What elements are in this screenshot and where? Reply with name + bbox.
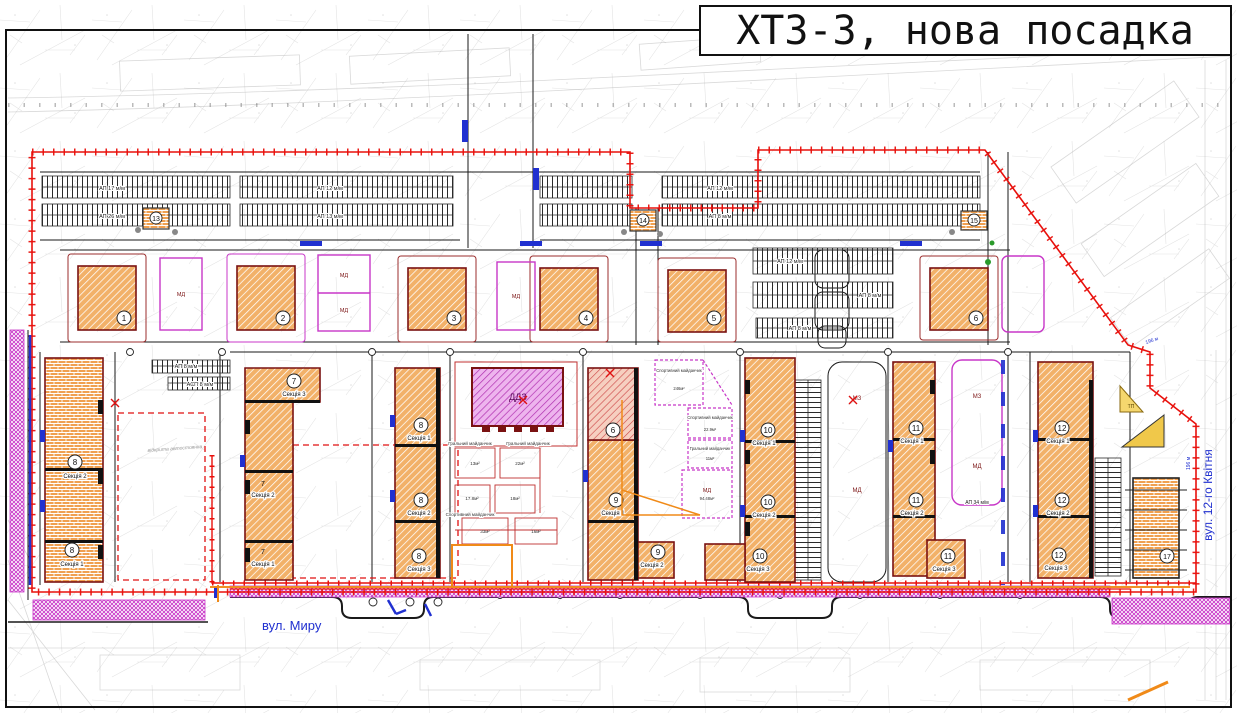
playground-area: 13м²: [470, 461, 480, 466]
playground-caption: Спортивний майданчик: [687, 415, 733, 420]
building-number: 10: [764, 426, 773, 435]
section-label: Секція 2: [752, 513, 776, 519]
md-area: 94.48м²: [700, 496, 715, 501]
building-number: 2: [281, 314, 286, 323]
playground-area: 246м²: [673, 386, 685, 391]
building-12: 12 Секція 1 12 Секція 2 12 Секція 3: [1038, 362, 1093, 578]
section-label: Секція 3: [1044, 566, 1068, 572]
playground-area: 22.9м²: [704, 427, 717, 432]
building-number: 1: [122, 314, 127, 323]
building-number: 12: [1058, 424, 1067, 433]
building-number: 8: [419, 421, 424, 430]
playground-area: 17.8м²: [465, 496, 479, 501]
parking-label: АП 8 м/м: [709, 214, 732, 220]
section-label: Секція 3: [746, 567, 770, 573]
playground-caption: Гральний майданчик: [448, 440, 492, 446]
md-label: МД: [972, 464, 981, 470]
building-number: 7: [261, 549, 265, 556]
building-8-left: 8 Секція 2 8 Секція 1: [45, 358, 103, 582]
building-number: 6: [611, 426, 616, 435]
section-label: Секція 3: [407, 567, 431, 573]
parking-label: АП 34 м/м: [965, 500, 989, 506]
section-label: Секція 1: [251, 562, 275, 568]
parking-label: АП 8 м/м: [175, 364, 198, 370]
parking-label: АСП 8 м/м: [187, 382, 214, 388]
section-label: Секція 1: [1046, 439, 1070, 445]
building-number: 8: [73, 458, 78, 467]
playground-area: 11м²: [706, 456, 715, 461]
md-label: МД: [852, 488, 861, 494]
street-label-bottom: вул. Миру: [262, 618, 322, 633]
playground-area: 16м²: [531, 529, 541, 534]
building-number: 12: [1055, 551, 1064, 560]
md-label: МД: [703, 488, 712, 494]
building-number: 13: [152, 216, 160, 223]
parking-label: АП 8 м/м: [859, 293, 882, 299]
building-number: 3: [452, 314, 457, 323]
parking-label: АП 13 м/м: [317, 214, 343, 220]
building-number: 14: [639, 218, 647, 225]
building-number: 11: [944, 552, 953, 561]
parking-label: АП 12 м/м: [707, 186, 733, 192]
building-number: 11: [912, 496, 921, 505]
md-label: МД: [340, 308, 349, 314]
building-number: 9: [614, 496, 619, 505]
section-label: Секція 3: [282, 392, 306, 398]
parking-label: АП 8 м/м: [789, 326, 812, 332]
building-number: 10: [756, 552, 765, 561]
section-label: Секція 2: [63, 474, 87, 480]
street-label-right: вул. 12-го Квітня: [1201, 449, 1215, 541]
dimension-label: 196 м: [1186, 456, 1192, 470]
section-label: Секція 2: [640, 563, 664, 569]
building-number: 8: [70, 546, 75, 555]
playground-area: 22м²: [515, 461, 525, 466]
playground-caption: Гральний майданчик: [506, 440, 550, 446]
parking-label: АП 17 м/м: [99, 186, 125, 192]
section-label: Секція 2: [407, 511, 431, 517]
building-number: 8: [419, 496, 424, 505]
section-label: Секція 1: [407, 436, 431, 442]
building-number: 12: [1058, 496, 1067, 505]
building-17: 17: [1125, 478, 1187, 578]
playground-caption: Спортивний майданчик: [446, 511, 495, 517]
section-label: Секція 3: [932, 567, 956, 573]
section-label: Секція 2: [900, 511, 924, 517]
md-label: МД: [177, 292, 186, 298]
section-label: Секція 1: [752, 441, 776, 447]
playground-area: 33м²: [480, 529, 490, 534]
building-number: 7: [261, 481, 265, 488]
parking-label: АП 12 м/м: [317, 186, 343, 192]
building-number: 5: [712, 314, 717, 323]
page-title: ХТЗ-3, нова посадка: [736, 8, 1194, 54]
section-label: Секція 1: [60, 562, 84, 568]
section-label: Секція 1: [900, 439, 924, 445]
section-label: Секція 2: [251, 493, 275, 499]
parking-label: АП 26 м/м: [99, 214, 125, 220]
md-label: МД: [512, 294, 521, 300]
site-plan-svg: АП 17 м/м АП 26 м/м АП 12 м/м АП 13 м/м …: [0, 0, 1237, 713]
building-number: 8: [417, 552, 422, 561]
playground-caption: Спортивний майданчик: [656, 368, 702, 373]
playground-caption: Гральний майданчик: [690, 446, 731, 451]
building-8-center: 8 Секція 1 8 Секція 2 8 Секція 3: [395, 368, 440, 578]
building-number: 9: [656, 548, 661, 557]
tp-label: ТП: [1128, 404, 1135, 410]
building-number: 11: [912, 424, 921, 433]
building-number: 4: [584, 314, 589, 323]
building-number: 10: [764, 498, 773, 507]
md-label: МД: [340, 273, 349, 279]
playground-area: 18м²: [510, 496, 520, 501]
building-number: 7: [292, 377, 297, 386]
site-plan-canvas: АП 17 м/м АП 26 м/м АП 12 м/м АП 13 м/м …: [0, 0, 1237, 713]
building-number: 15: [970, 218, 978, 225]
mz-label: МЗ: [973, 394, 982, 400]
building-number: 17: [1163, 554, 1171, 561]
building-number: 6: [974, 314, 979, 323]
parking-label: АП 12 м/м: [777, 259, 803, 265]
section-label: Секція 2: [1046, 511, 1070, 517]
